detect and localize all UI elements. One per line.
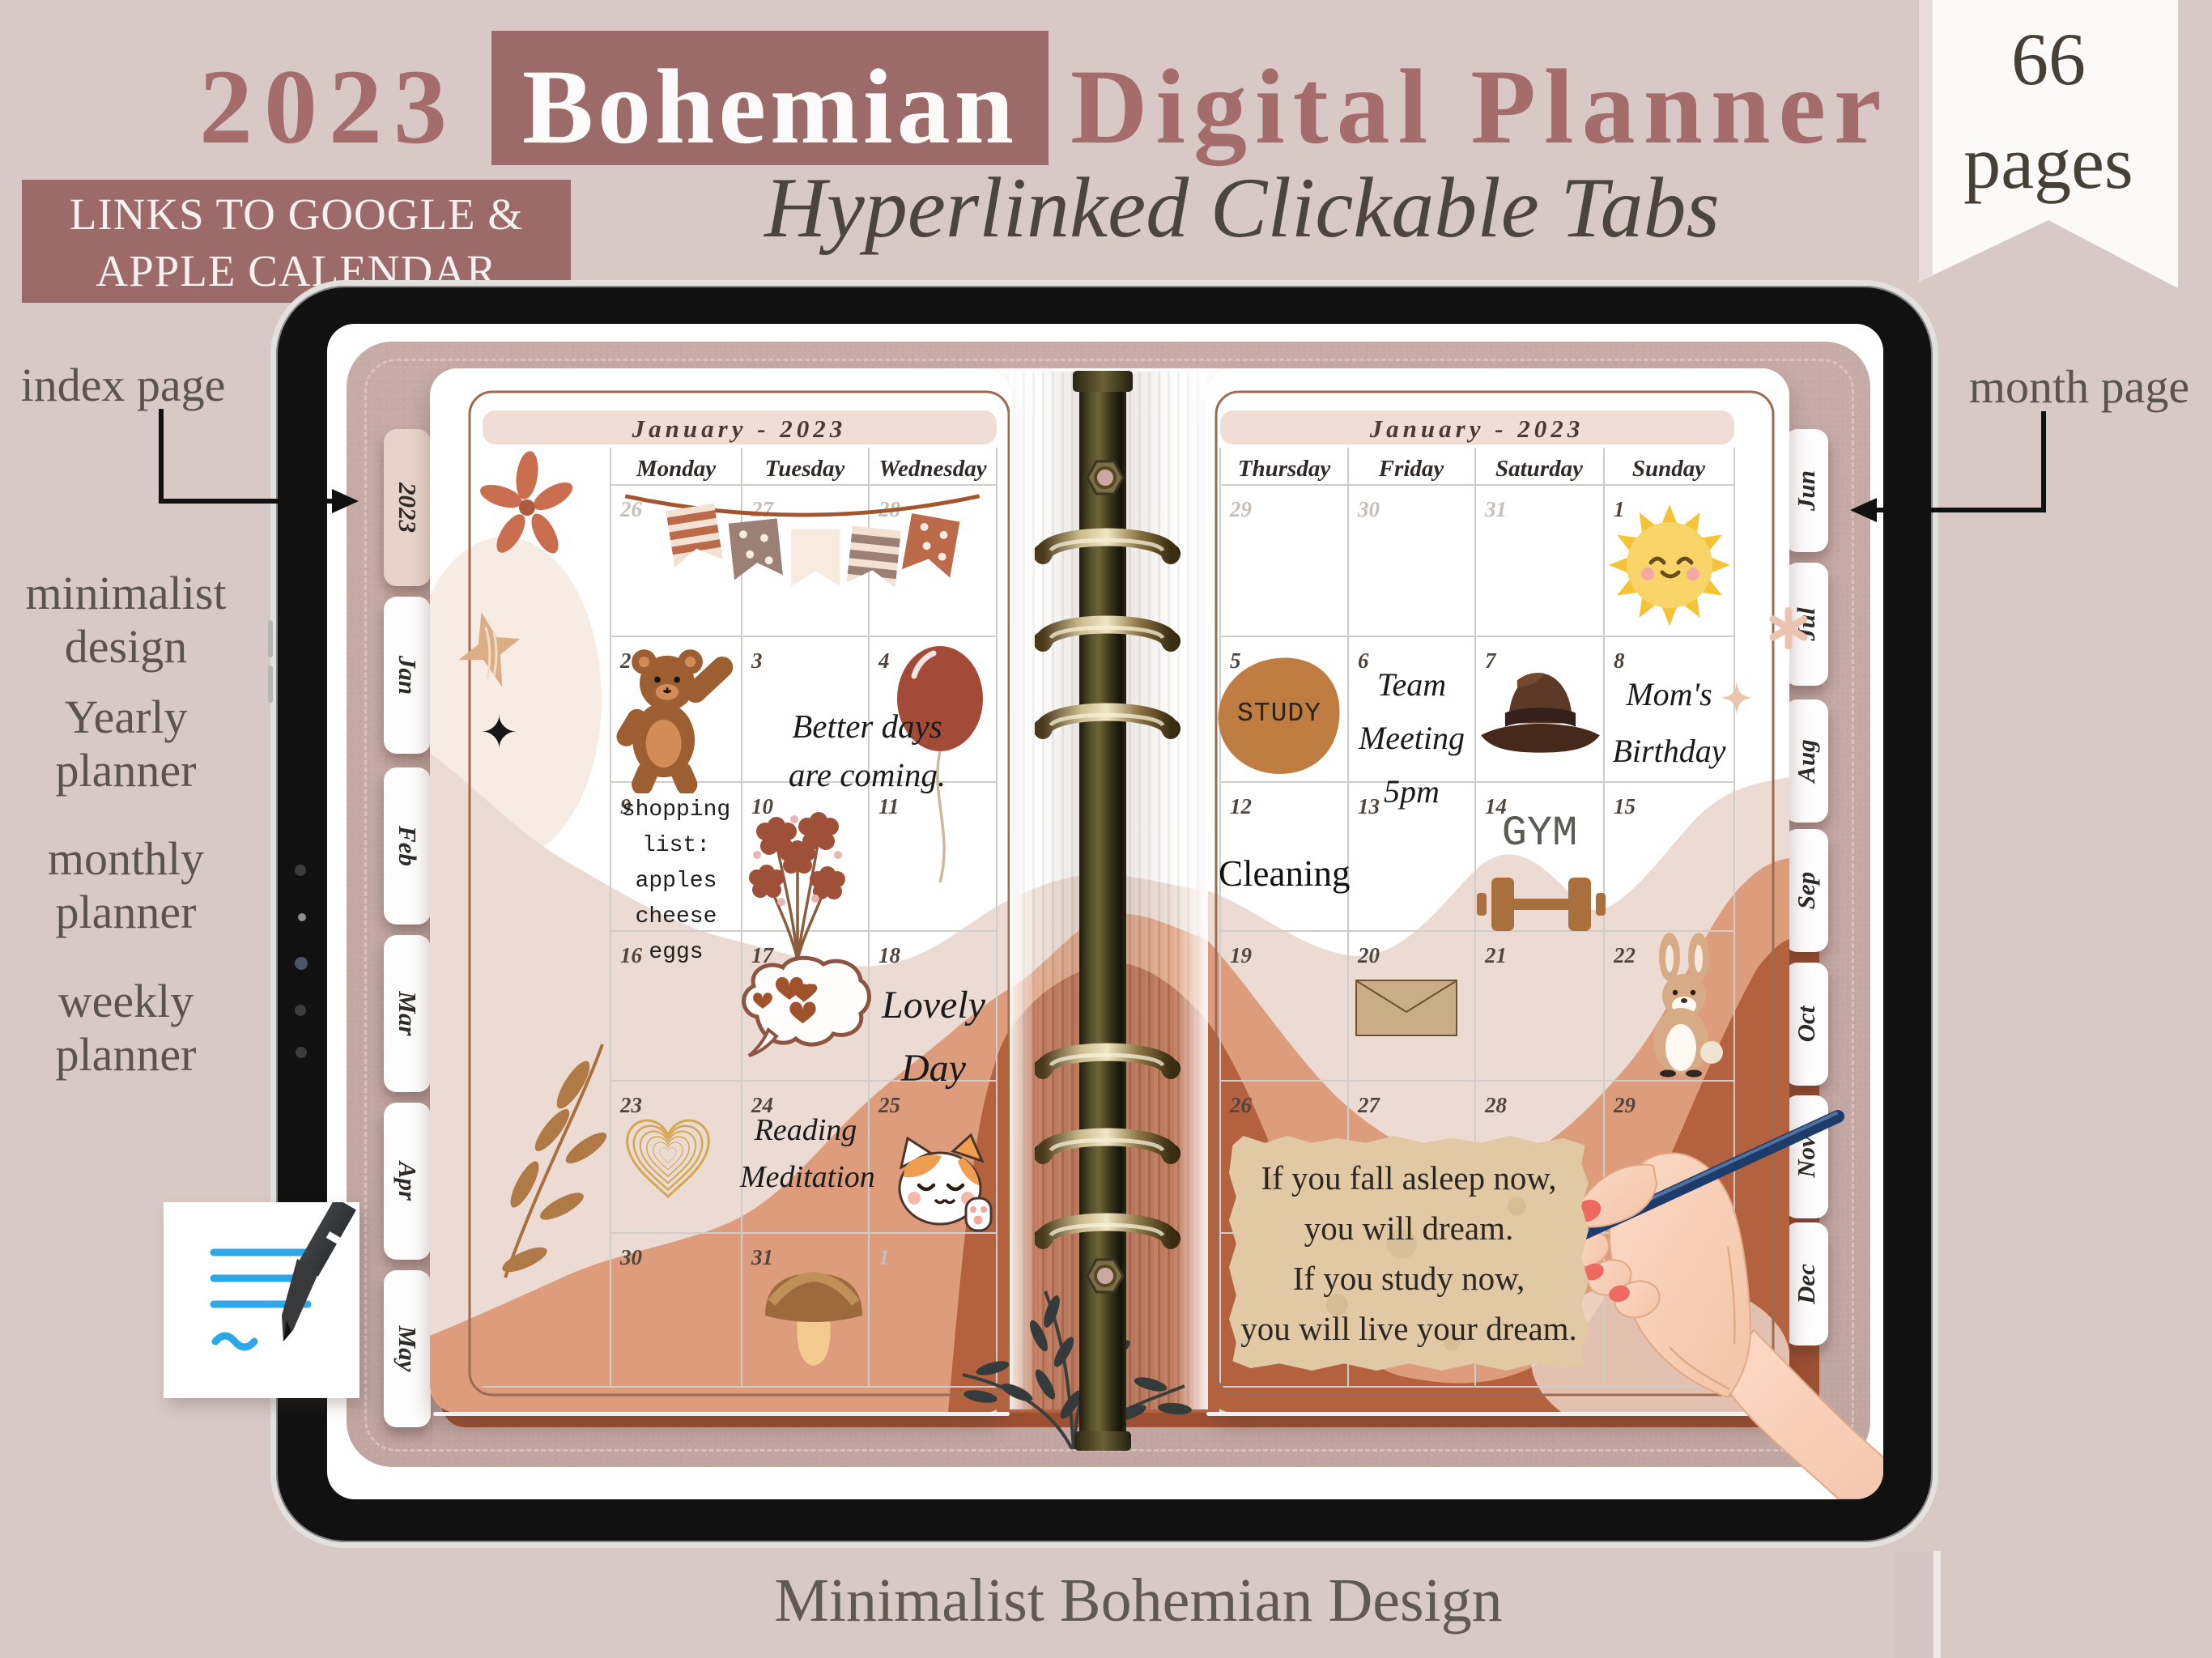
- svg-text:Saturday: Saturday: [1495, 456, 1583, 482]
- svg-text:January - 2023: January - 2023: [632, 414, 847, 443]
- svg-text:30: 30: [1357, 497, 1380, 521]
- svg-text:Thursday: Thursday: [1238, 456, 1331, 482]
- svg-text:29: 29: [1229, 497, 1253, 521]
- svg-text:27: 27: [1357, 1093, 1381, 1117]
- svg-text:30: 30: [619, 1245, 643, 1269]
- svg-text:3: 3: [751, 648, 763, 673]
- svg-text:12: 12: [1230, 794, 1252, 818]
- svg-text:31: 31: [1484, 497, 1507, 521]
- svg-text:18: 18: [878, 943, 901, 967]
- svg-text:20: 20: [1357, 943, 1380, 967]
- svg-text:21: 21: [1484, 943, 1507, 967]
- svg-text:Wednesday: Wednesday: [878, 456, 986, 482]
- svg-text:Tuesday: Tuesday: [765, 456, 845, 482]
- svg-text:Sunday: Sunday: [1632, 456, 1705, 482]
- svg-text:26: 26: [1229, 1093, 1253, 1117]
- svg-text:Friday: Friday: [1378, 456, 1444, 482]
- svg-text:19: 19: [1230, 943, 1253, 967]
- svg-text:Monday: Monday: [636, 456, 716, 482]
- svg-text:22: 22: [1613, 943, 1636, 967]
- svg-text:15: 15: [1614, 794, 1636, 818]
- svg-text:1: 1: [878, 1245, 890, 1269]
- svg-text:January - 2023: January - 2023: [1369, 414, 1585, 443]
